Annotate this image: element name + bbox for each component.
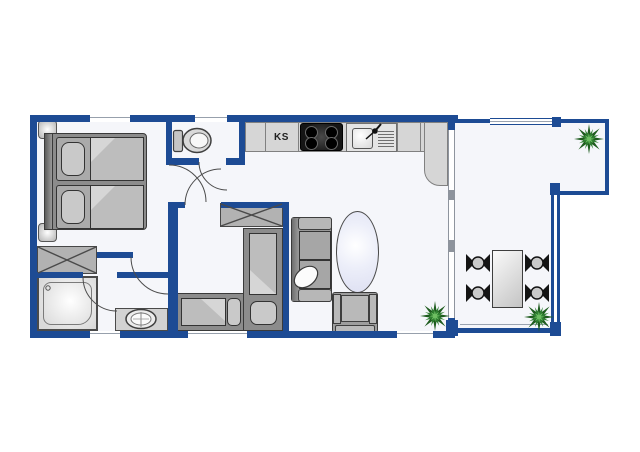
blanket [90, 185, 144, 229]
burner [305, 137, 318, 150]
terrace-wall-top [455, 119, 490, 123]
sink-icon [346, 123, 397, 152]
blanket-fold [91, 138, 115, 162]
wall-bedroom1-bottom [97, 252, 133, 258]
wall-bedroom2-top [221, 202, 283, 208]
window-glass-facade [448, 130, 455, 318]
counter-divider [420, 122, 421, 152]
blanket [90, 137, 144, 181]
pillow [61, 190, 85, 224]
wardrobe-icon [37, 246, 97, 274]
counter-divider [298, 122, 299, 152]
stove-icon [300, 123, 343, 151]
terrace-wall-right [605, 119, 609, 195]
pillow [227, 298, 241, 326]
blanket [249, 233, 277, 295]
sofa-armrest [298, 217, 332, 230]
dining-table-icon [492, 250, 523, 308]
counter-divider [397, 122, 398, 152]
armchair-armrest [333, 294, 341, 324]
wall-wc-right [239, 122, 245, 165]
fridge-label: KS [265, 122, 298, 152]
sink-drainer [378, 129, 394, 148]
wall-hall-bedroom2 [168, 202, 178, 331]
wall-exterior-right-top [448, 115, 455, 130]
shower-icon [37, 276, 98, 331]
pillow [250, 301, 277, 325]
kitchen-counter-return [424, 122, 448, 186]
window-icon [90, 331, 120, 338]
shower-tray [43, 282, 92, 325]
glass-mullion [448, 240, 455, 252]
terrace-post [550, 322, 561, 336]
terrace-post [552, 117, 561, 127]
wall-wc-bottom [166, 158, 199, 165]
pillow [61, 142, 85, 176]
wall-bedroom2-living [283, 202, 289, 338]
window-icon [90, 115, 130, 122]
wall-bathroom-top [117, 272, 168, 278]
coffee-table-icon [336, 211, 379, 293]
window-icon [188, 331, 247, 338]
terrace-post [550, 183, 560, 195]
terrace-wall-step [556, 191, 609, 195]
wall-bedroom2-top-stub [178, 202, 185, 208]
sofa-cushion [299, 231, 331, 260]
washbasin-icon [115, 308, 168, 331]
blanket-fold [91, 186, 115, 210]
terrace-wall-top [561, 119, 609, 123]
window-icon [397, 331, 433, 338]
terrace-post [446, 320, 458, 336]
terrace-railing-line [460, 324, 548, 325]
blanket [181, 298, 226, 326]
blanket-fold [201, 299, 225, 321]
sofa-cushion [299, 260, 331, 289]
burner [325, 137, 338, 150]
sofa-armrest [298, 289, 332, 302]
wall-exterior-left [30, 115, 37, 338]
terrace-gate [490, 118, 552, 125]
bed-headboard [44, 133, 53, 230]
terrace-railing-glass [551, 195, 560, 329]
terrace-wall-bottom [455, 328, 555, 333]
armchair-cushion [341, 295, 369, 322]
wall-bathroom-top [36, 272, 83, 278]
armchair-armrest [369, 294, 377, 324]
glass-mullion [448, 190, 455, 200]
blanket-fold [250, 270, 276, 294]
floor-plan: KS [0, 0, 640, 452]
window-icon [195, 115, 227, 122]
sink-basin [352, 128, 373, 149]
